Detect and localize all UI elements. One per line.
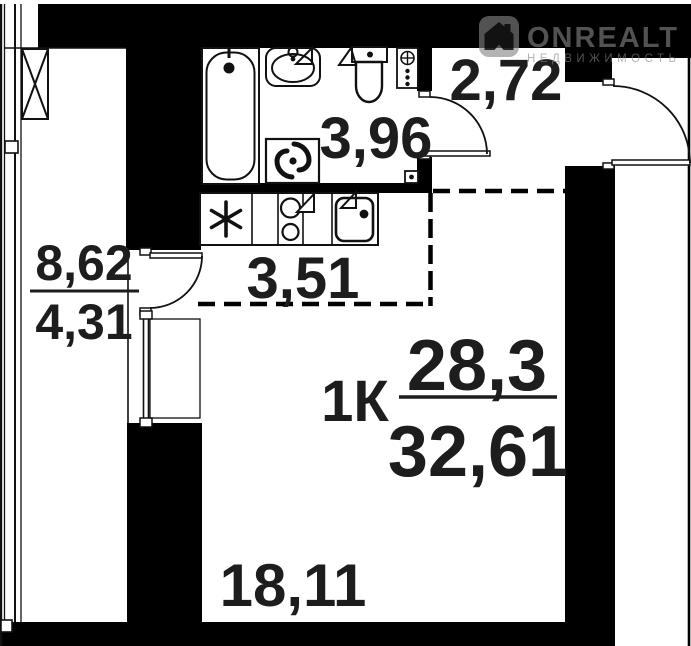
wall-right [565, 166, 615, 646]
plumbing-riser-icon [397, 48, 418, 88]
floor-plan: 2,72 3,96 3,51 8,62 4,31 1К 28,3 32,61 1… [0, 0, 691, 646]
wall-bottom [0, 622, 615, 646]
label-bathroom-area: 3,96 [320, 106, 433, 171]
balcony-window [140, 311, 200, 427]
label-living-area: 28,3 [407, 326, 547, 406]
window-jamb [140, 418, 152, 427]
door-jamb [419, 91, 430, 97]
bathtub-icon [202, 48, 259, 184]
wall-left-lower-chunk [127, 423, 202, 622]
label-loggia-full-area: 8,62 [35, 235, 132, 291]
logo-tagline-text: НЕДВИЖИМОСТЬ [527, 53, 681, 65]
riser-marker-icon [405, 171, 418, 183]
label-total-area: 32,61 [388, 412, 568, 492]
door-jamb [603, 79, 614, 85]
door-leaf [150, 253, 202, 258]
ventilation-shaft-icon [22, 49, 48, 119]
door-swing-arc [150, 256, 202, 308]
glazing-joint [1, 620, 12, 632]
door-leaf [424, 151, 490, 156]
window-sill [150, 319, 200, 418]
toilet-icon [339, 47, 387, 102]
entrance-door [603, 79, 690, 169]
logo-brand-text: ONREALT [527, 22, 679, 54]
label-kitchen-area: 3,51 [247, 246, 360, 311]
door-swing-arc [613, 86, 690, 163]
label-loggia-counted-area: 4,31 [35, 294, 132, 350]
washing-machine-icon [266, 139, 319, 183]
window-jamb [140, 311, 152, 319]
loggia-door [140, 248, 202, 315]
wall-bath-jamb-top [417, 48, 432, 91]
label-apartment-type: 1К [321, 369, 389, 434]
wash-basin-icon [266, 48, 320, 87]
glazing-joint [5, 141, 18, 153]
label-living-room-area: 18,11 [220, 552, 367, 619]
wall-left-upper-chunk [126, 48, 201, 250]
door-leaf [612, 160, 690, 165]
